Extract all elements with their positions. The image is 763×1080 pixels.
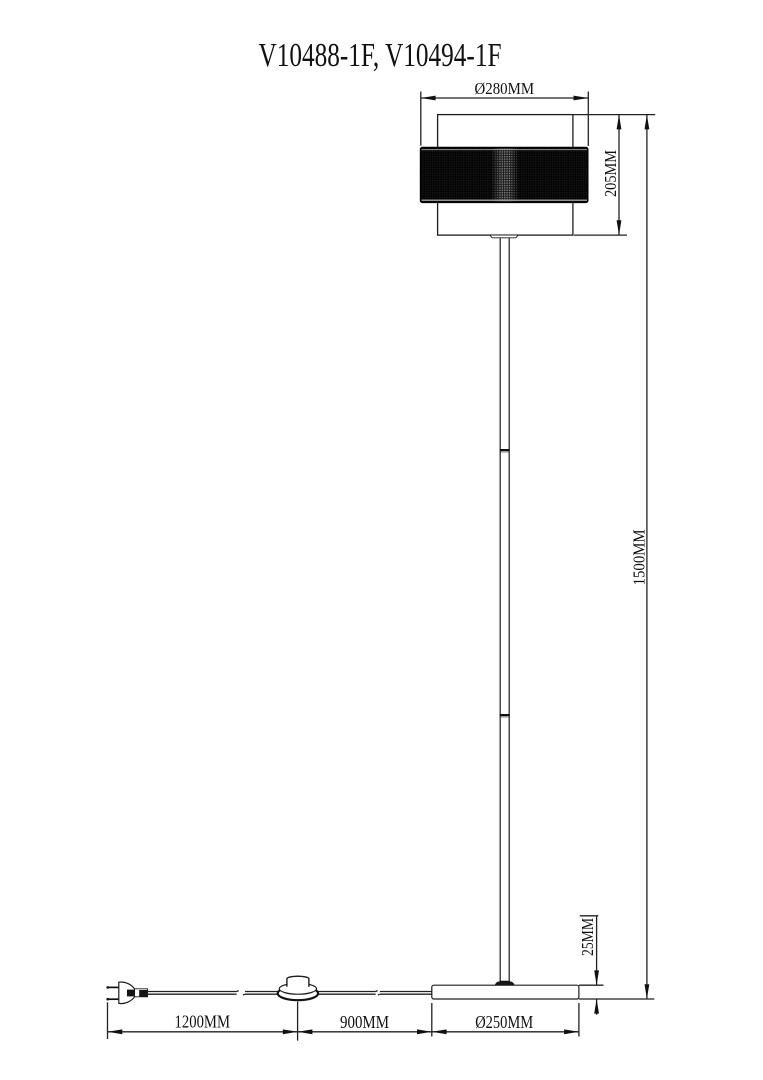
svg-text:900MM: 900MM [340, 1012, 389, 1032]
svg-text:Ø250MM: Ø250MM [475, 1012, 533, 1032]
svg-text:25MM: 25MM [578, 918, 597, 956]
svg-text:1500MM: 1500MM [630, 529, 649, 585]
svg-text:205MM: 205MM [601, 150, 620, 197]
svg-text:1200MM: 1200MM [175, 1012, 231, 1032]
svg-text:V10488-1F, V10494-1F: V10488-1F, V10494-1F [259, 37, 502, 74]
svg-text:Ø280MM: Ø280MM [475, 79, 535, 98]
